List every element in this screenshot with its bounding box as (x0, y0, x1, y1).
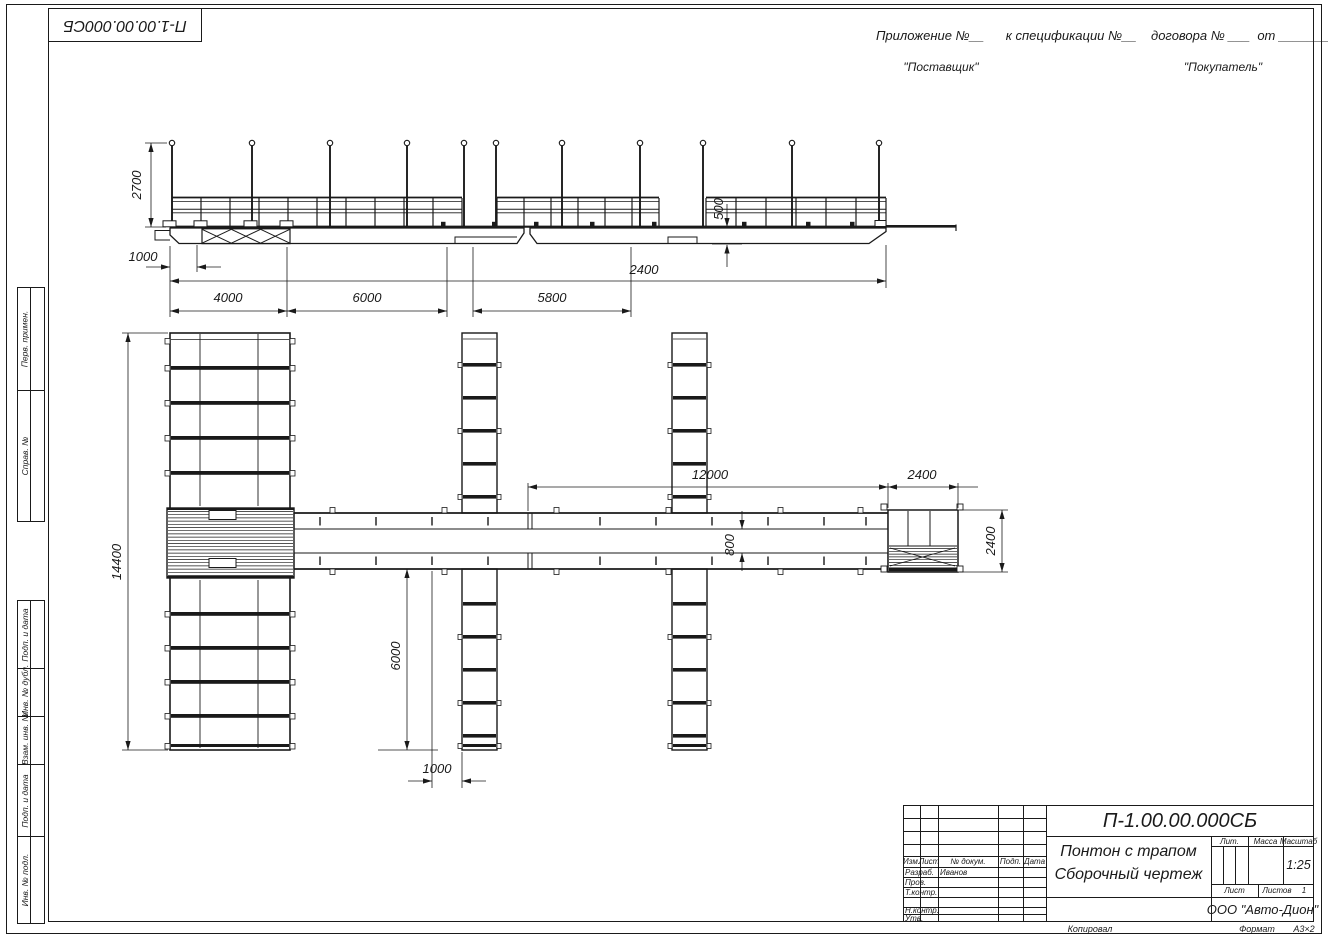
titleblock-line (1235, 846, 1236, 884)
titleblock-col-list: Лист (920, 856, 938, 867)
titleblock-line (1223, 846, 1224, 884)
dimension-label: 2400 (982, 511, 1000, 571)
titleblock-col-data: Дата (1023, 856, 1046, 867)
pontoon-drawing-geometry (0, 0, 1328, 939)
titleblock-name-line2: Сборочный чертеж (1048, 863, 1209, 887)
titleblock-company: ООО "Авто-Дион" (1211, 897, 1314, 922)
titleblock-scale-value: 1:25 (1283, 846, 1314, 884)
dimension-label: 12000 (680, 466, 740, 484)
titleblock-massa-label: Масса (1248, 836, 1283, 846)
titleblock-doc-number: П-1.00.00.000СБ (1048, 807, 1312, 835)
dimension-label: 5800 (522, 289, 582, 307)
titleblock-listov-value: 1 (1296, 885, 1312, 896)
dimension-label: 1000 (113, 248, 173, 266)
titleblock-row-tkontr: Т.контр. (905, 888, 943, 897)
dimension-label: 6000 (387, 626, 405, 686)
footer-kopiroval: Копировал (1055, 923, 1125, 934)
titleblock-line (903, 844, 1046, 845)
titleblock-row-prov: Пров. (905, 878, 938, 887)
dimension-label: 500 (710, 179, 728, 239)
titleblock-row-utv: Утв. (905, 914, 938, 922)
footer-format-value: А3×2 (1286, 923, 1322, 934)
titleblock-col-podp: Подп. (998, 856, 1023, 867)
dimension-label: 1000 (407, 760, 467, 778)
dimension-label: 2700 (128, 155, 146, 215)
titleblock-col-izm: Изм. (903, 856, 920, 867)
titleblock-masshtab-label: Масштаб (1283, 836, 1314, 846)
dimension-label: 800 (721, 515, 739, 575)
titleblock-name-line1: Понтон с трапом (1048, 840, 1209, 864)
titleblock-razrab-name: Иванов (940, 868, 996, 877)
dimension-label: 14400 (108, 532, 126, 592)
dimension-label: 2400 (614, 261, 674, 279)
titleblock-line (903, 818, 1046, 819)
footer-format-label: Формат (1232, 923, 1282, 934)
titleblock-list-label: Лист (1211, 885, 1258, 896)
titleblock-line (903, 831, 1046, 832)
dimension-label: 2400 (892, 466, 952, 484)
titleblock-listov-label: Листов (1258, 885, 1296, 896)
titleblock-line (1046, 805, 1047, 922)
titleblock-lit-label: Лит. (1211, 836, 1248, 846)
titleblock-col-dokum: № докум. (938, 856, 998, 867)
drawing-sheet: П-1.00.00.000СБ Приложение №__ к специфи… (0, 0, 1328, 939)
titleblock-line (903, 897, 1046, 898)
dimension-label: 6000 (337, 289, 397, 307)
dimension-label: 4000 (198, 289, 258, 307)
titleblock-row-razrab: Разраб. (905, 868, 938, 877)
